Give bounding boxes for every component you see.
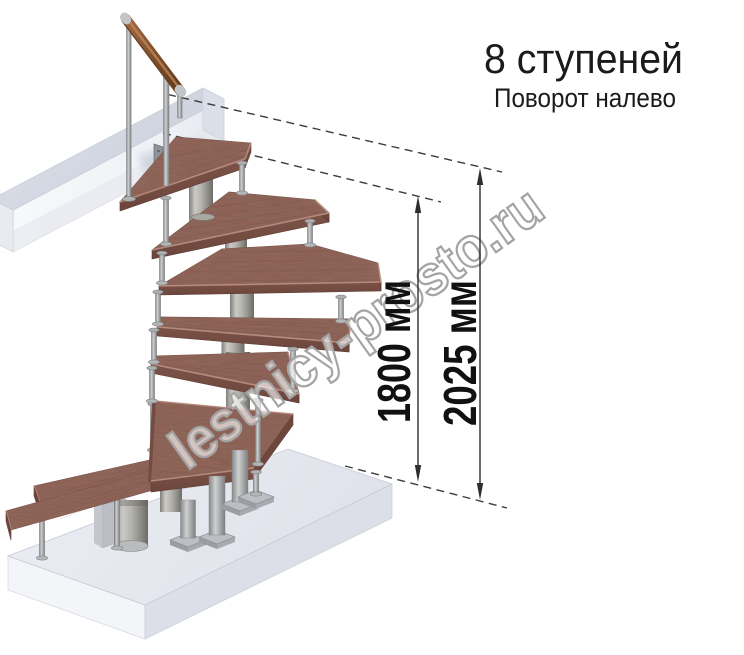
svg-text:2025 мм: 2025 мм <box>434 280 486 426</box>
svg-text:8 ступеней: 8 ступеней <box>484 35 683 82</box>
svg-text:Поворот налево: Поворот налево <box>494 83 676 113</box>
svg-text:1800 мм: 1800 мм <box>368 280 420 423</box>
